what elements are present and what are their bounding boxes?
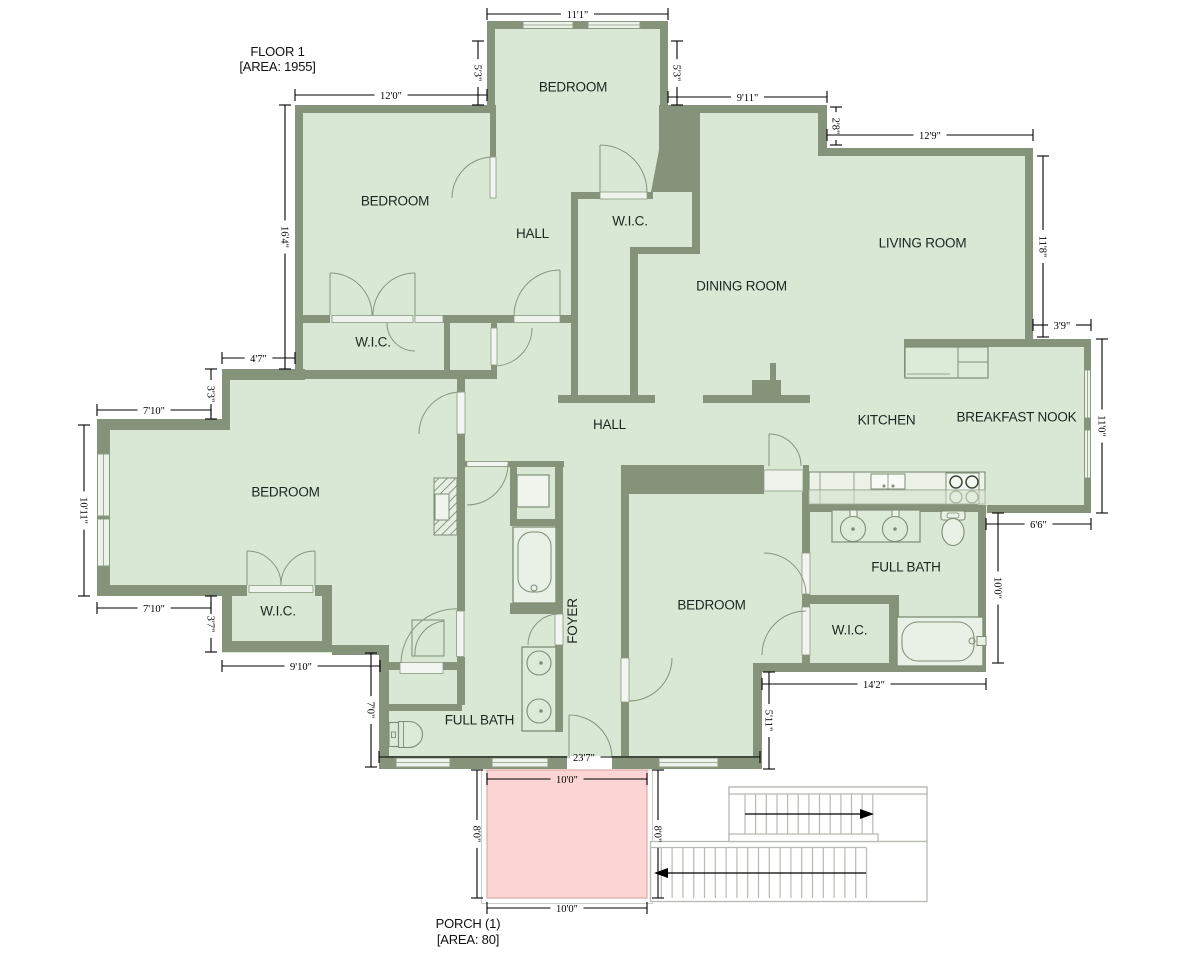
svg-text:8'0": 8'0": [471, 826, 482, 843]
svg-text:10'0": 10'0": [556, 904, 578, 915]
svg-text:5'3": 5'3": [472, 65, 483, 82]
svg-text:7'10": 7'10": [143, 604, 165, 615]
svg-text:W.I.C.: W.I.C.: [355, 335, 391, 350]
svg-text:W.I.C.: W.I.C.: [832, 623, 868, 638]
svg-text:BEDROOM: BEDROOM: [539, 80, 607, 95]
svg-text:4'7": 4'7": [250, 354, 267, 365]
svg-text:FULL BATH: FULL BATH: [871, 560, 940, 575]
svg-text:BEDROOM: BEDROOM: [361, 194, 429, 209]
svg-text:W.I.C.: W.I.C.: [260, 604, 296, 619]
svg-text:7'10": 7'10": [143, 406, 165, 417]
svg-text:FLOOR 1: FLOOR 1: [250, 44, 304, 59]
svg-text:10'0": 10'0": [556, 775, 578, 786]
svg-text:BEDROOM: BEDROOM: [251, 485, 319, 500]
svg-text:LIVING ROOM: LIVING ROOM: [879, 236, 967, 251]
svg-text:10'11": 10'11": [78, 497, 89, 524]
svg-text:3'9": 3'9": [1054, 321, 1071, 332]
svg-text:HALL: HALL: [516, 226, 550, 241]
svg-text:10'0": 10'0": [992, 577, 1003, 599]
svg-text:BEDROOM: BEDROOM: [677, 598, 745, 613]
svg-text:5'11": 5'11": [763, 710, 774, 732]
svg-text:7'0": 7'0": [365, 702, 376, 719]
svg-text:[AREA: 1955]: [AREA: 1955]: [239, 59, 315, 74]
svg-text:12'0": 12'0": [380, 91, 402, 102]
svg-text:5'3": 5'3": [671, 65, 682, 82]
svg-text:BREAKFAST NOOK: BREAKFAST NOOK: [957, 410, 1077, 425]
svg-text:9'10": 9'10": [290, 662, 312, 673]
svg-text:9'11": 9'11": [737, 93, 759, 104]
svg-text:6'6": 6'6": [1030, 520, 1047, 531]
svg-text:DINING ROOM: DINING ROOM: [696, 279, 787, 294]
svg-text:PORCH (1): PORCH (1): [436, 916, 501, 931]
svg-text:FULL BATH: FULL BATH: [445, 713, 514, 728]
svg-text:2'8": 2'8": [830, 118, 841, 135]
svg-text:FOYER: FOYER: [565, 598, 580, 644]
svg-text:14'2": 14'2": [863, 680, 885, 691]
svg-text:3'3": 3'3": [205, 386, 216, 403]
svg-text:23'7": 23'7": [573, 753, 595, 764]
svg-text:[AREA: 80]: [AREA: 80]: [437, 932, 499, 947]
svg-text:KITCHEN: KITCHEN: [858, 413, 916, 428]
svg-text:W.I.C.: W.I.C.: [612, 214, 648, 229]
svg-text:HALL: HALL: [593, 417, 627, 432]
svg-text:16'4": 16'4": [279, 226, 290, 248]
svg-text:12'9": 12'9": [919, 131, 941, 142]
svg-text:11'1": 11'1": [567, 10, 589, 21]
svg-text:11'0": 11'0": [1096, 415, 1107, 437]
svg-text:3'7": 3'7": [205, 616, 216, 633]
svg-text:8'0": 8'0": [652, 826, 663, 843]
svg-text:11'8": 11'8": [1037, 236, 1048, 258]
